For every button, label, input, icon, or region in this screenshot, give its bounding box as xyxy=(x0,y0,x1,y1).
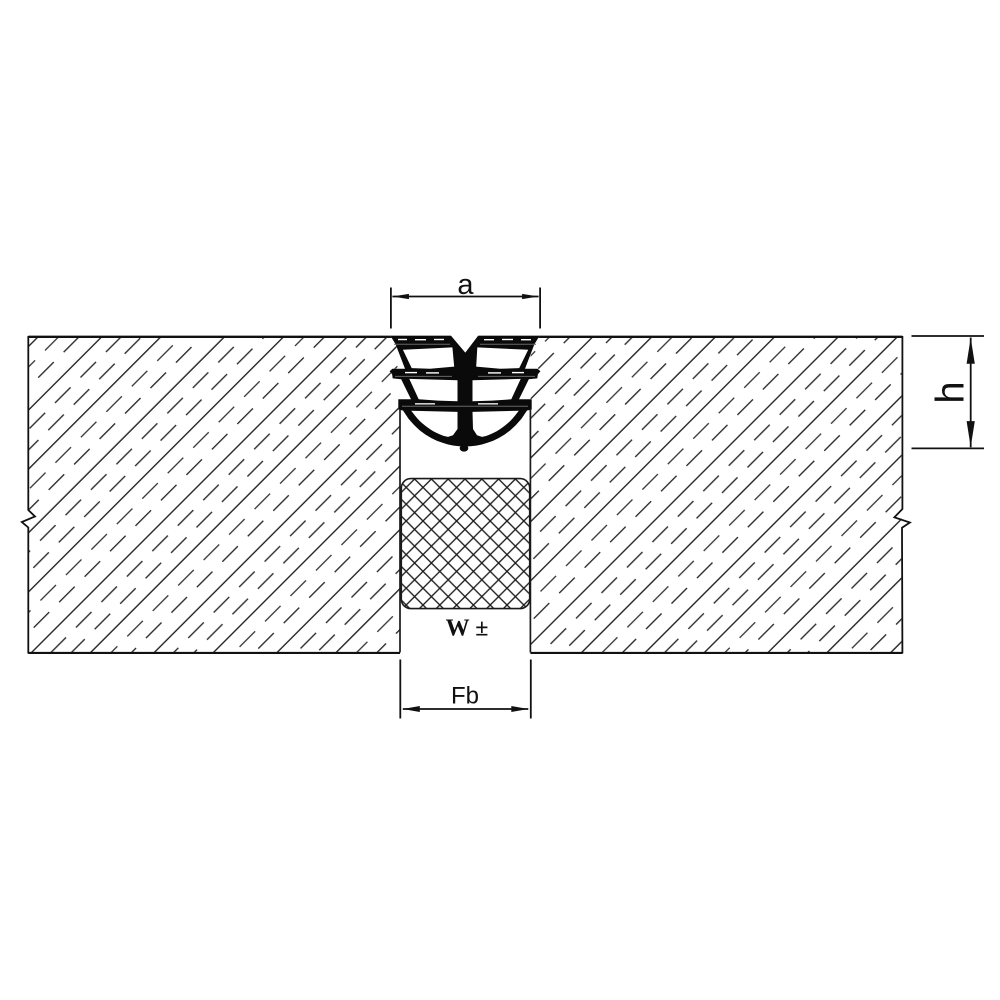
svg-text:W ±: W ± xyxy=(446,616,489,642)
svg-text:a: a xyxy=(457,269,474,301)
svg-text:Fb: Fb xyxy=(451,683,479,710)
svg-text:h: h xyxy=(929,381,973,403)
